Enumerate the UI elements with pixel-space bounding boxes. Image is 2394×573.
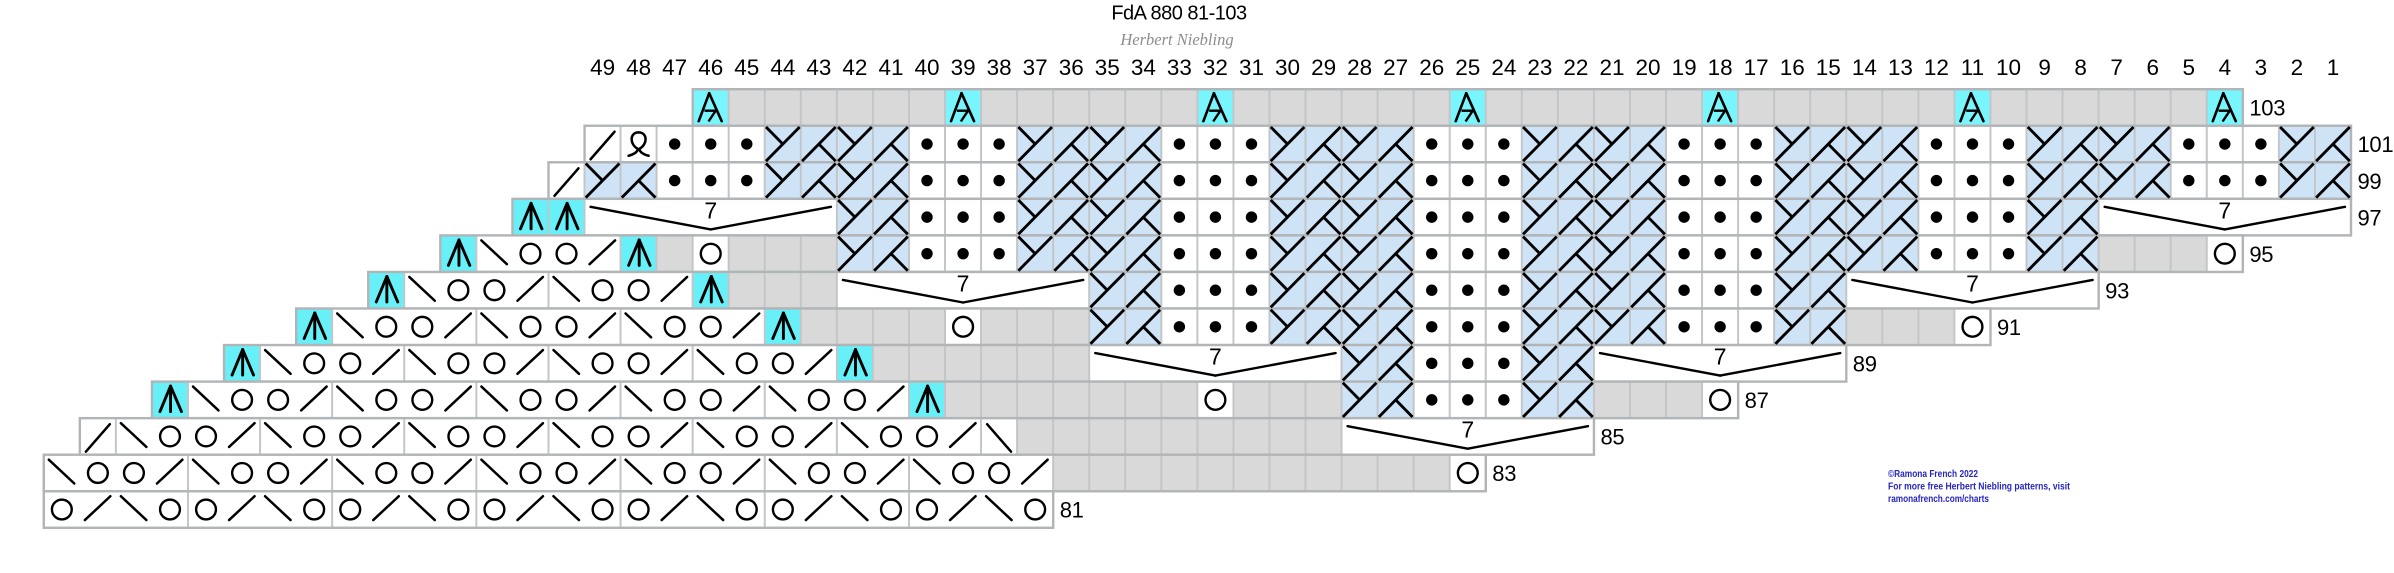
svg-text:25: 25 (1455, 55, 1480, 80)
svg-text:8: 8 (2074, 55, 2087, 80)
svg-text:31: 31 (1239, 55, 1264, 80)
svg-text:41: 41 (878, 55, 903, 80)
svg-text:42: 42 (842, 55, 867, 80)
svg-text:93: 93 (2105, 278, 2129, 303)
svg-text:6: 6 (2146, 55, 2159, 80)
svg-text:2: 2 (2291, 55, 2304, 80)
svg-text:14: 14 (1852, 55, 1877, 80)
svg-text:47: 47 (662, 55, 687, 80)
svg-text:5: 5 (2183, 55, 2196, 80)
svg-text:22: 22 (1563, 55, 1588, 80)
svg-text:89: 89 (1853, 352, 1877, 377)
svg-text:16: 16 (1780, 55, 1805, 80)
svg-text:26: 26 (1419, 55, 1444, 80)
svg-text:36: 36 (1059, 55, 1084, 80)
svg-text:27: 27 (1383, 55, 1408, 80)
svg-text:11: 11 (1961, 55, 1984, 80)
svg-text:45: 45 (734, 55, 759, 80)
svg-text:103: 103 (2249, 96, 2285, 121)
svg-text:7: 7 (957, 270, 970, 296)
svg-text:21: 21 (1599, 55, 1624, 80)
svg-text:10: 10 (1996, 55, 2021, 80)
svg-text:7: 7 (704, 197, 717, 223)
svg-text:97: 97 (2358, 205, 2382, 230)
svg-text:29: 29 (1311, 55, 1336, 80)
svg-text:40: 40 (915, 55, 940, 80)
svg-text:46: 46 (698, 55, 723, 80)
svg-text:87: 87 (1745, 388, 1769, 413)
svg-text:17: 17 (1744, 55, 1769, 80)
svg-text:38: 38 (987, 55, 1012, 80)
svg-text:28: 28 (1347, 55, 1372, 80)
svg-text:81: 81 (1060, 498, 1084, 523)
svg-text:15: 15 (1816, 55, 1841, 80)
svg-text:13: 13 (1888, 55, 1913, 80)
svg-text:34: 34 (1131, 55, 1156, 80)
svg-text:95: 95 (2249, 242, 2273, 267)
svg-text:7: 7 (1966, 270, 1979, 296)
svg-text:12: 12 (1924, 55, 1949, 80)
svg-text:30: 30 (1275, 55, 1300, 80)
svg-text:9: 9 (2038, 55, 2051, 80)
svg-text:7: 7 (1714, 344, 1727, 370)
svg-text:18: 18 (1708, 55, 1733, 80)
svg-text:35: 35 (1095, 55, 1120, 80)
svg-text:32: 32 (1203, 55, 1228, 80)
svg-text:83: 83 (1492, 461, 1516, 486)
svg-text:99: 99 (2358, 169, 2382, 194)
svg-text:3: 3 (2255, 55, 2268, 80)
svg-text:7: 7 (1461, 417, 1474, 443)
svg-text:20: 20 (1636, 55, 1661, 80)
svg-text:4: 4 (2219, 55, 2232, 80)
svg-text:For more free Herbert Niebling: For more free Herbert Niebling patterns,… (1888, 481, 2070, 493)
svg-text:39: 39 (951, 55, 976, 80)
svg-text:ramonafrench.com/charts: ramonafrench.com/charts (1888, 493, 1989, 505)
svg-text:49: 49 (590, 55, 615, 80)
svg-text:7: 7 (2110, 55, 2123, 80)
svg-text:7: 7 (1209, 344, 1222, 370)
svg-text:7: 7 (2218, 197, 2231, 223)
svg-text:23: 23 (1527, 55, 1552, 80)
svg-text:FdA 880 81-103: FdA 880 81-103 (1111, 3, 1247, 25)
svg-text:48: 48 (626, 55, 651, 80)
svg-text:Herbert Niebling: Herbert Niebling (1119, 30, 1233, 49)
svg-text:19: 19 (1672, 55, 1697, 80)
svg-text:43: 43 (806, 55, 831, 80)
svg-text:1: 1 (2327, 55, 2340, 80)
svg-text:91: 91 (1997, 315, 2021, 340)
svg-text:37: 37 (1023, 55, 1048, 80)
svg-text:44: 44 (770, 55, 795, 80)
svg-text:33: 33 (1167, 55, 1192, 80)
svg-text:24: 24 (1491, 55, 1516, 80)
svg-text:101: 101 (2358, 132, 2394, 157)
svg-text:©Ramona French 2022: ©Ramona French 2022 (1888, 468, 1978, 480)
svg-text:85: 85 (1600, 425, 1624, 450)
